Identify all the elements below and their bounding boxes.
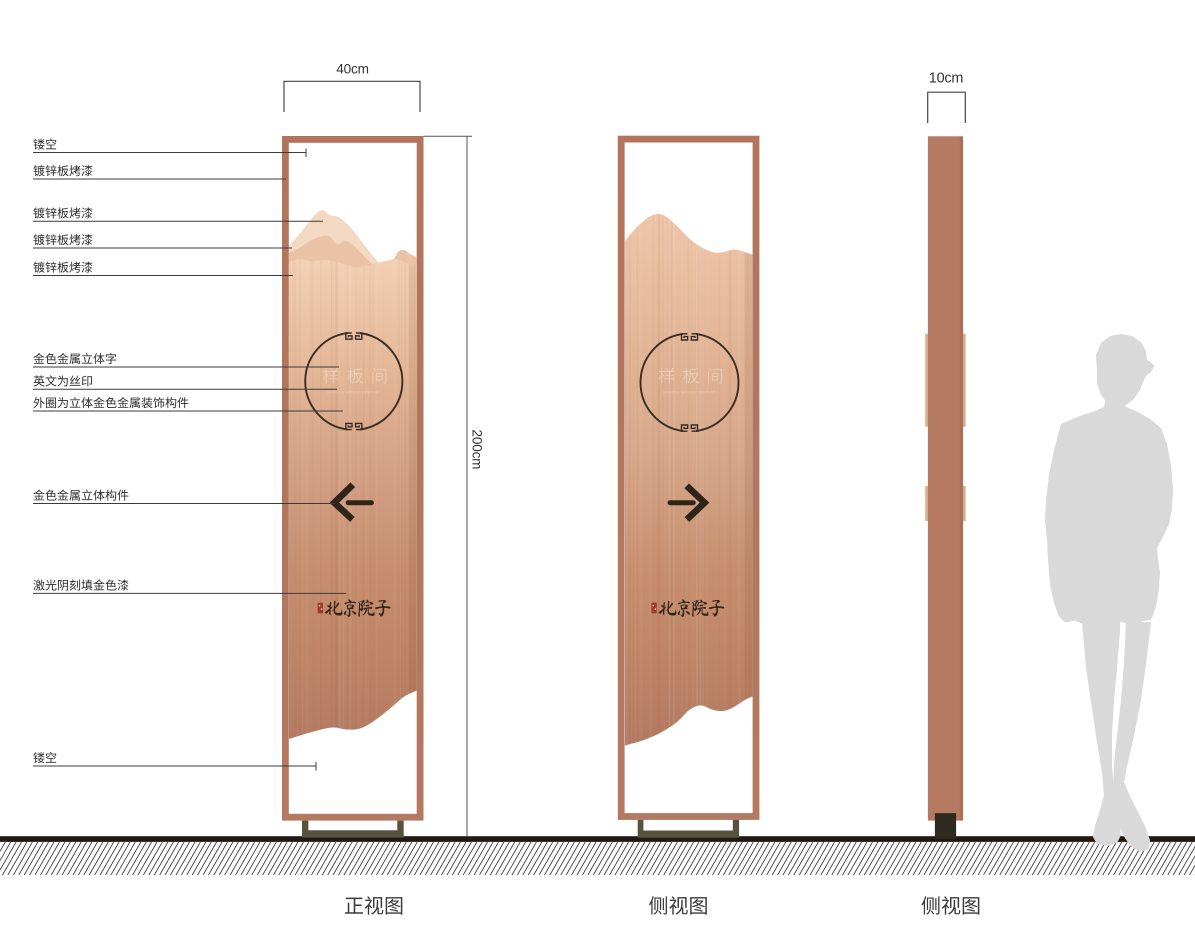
svg-text:SAMPLE HOUSE DISPLAY: SAMPLE HOUSE DISPLAY	[663, 390, 716, 395]
svg-text:40cm: 40cm	[336, 62, 368, 77]
svg-text:10cm: 10cm	[929, 71, 964, 87]
svg-text:200cm: 200cm	[469, 430, 484, 470]
svg-text:SAMPLE HOUSE DISPLAY: SAMPLE HOUSE DISPLAY	[327, 390, 380, 395]
